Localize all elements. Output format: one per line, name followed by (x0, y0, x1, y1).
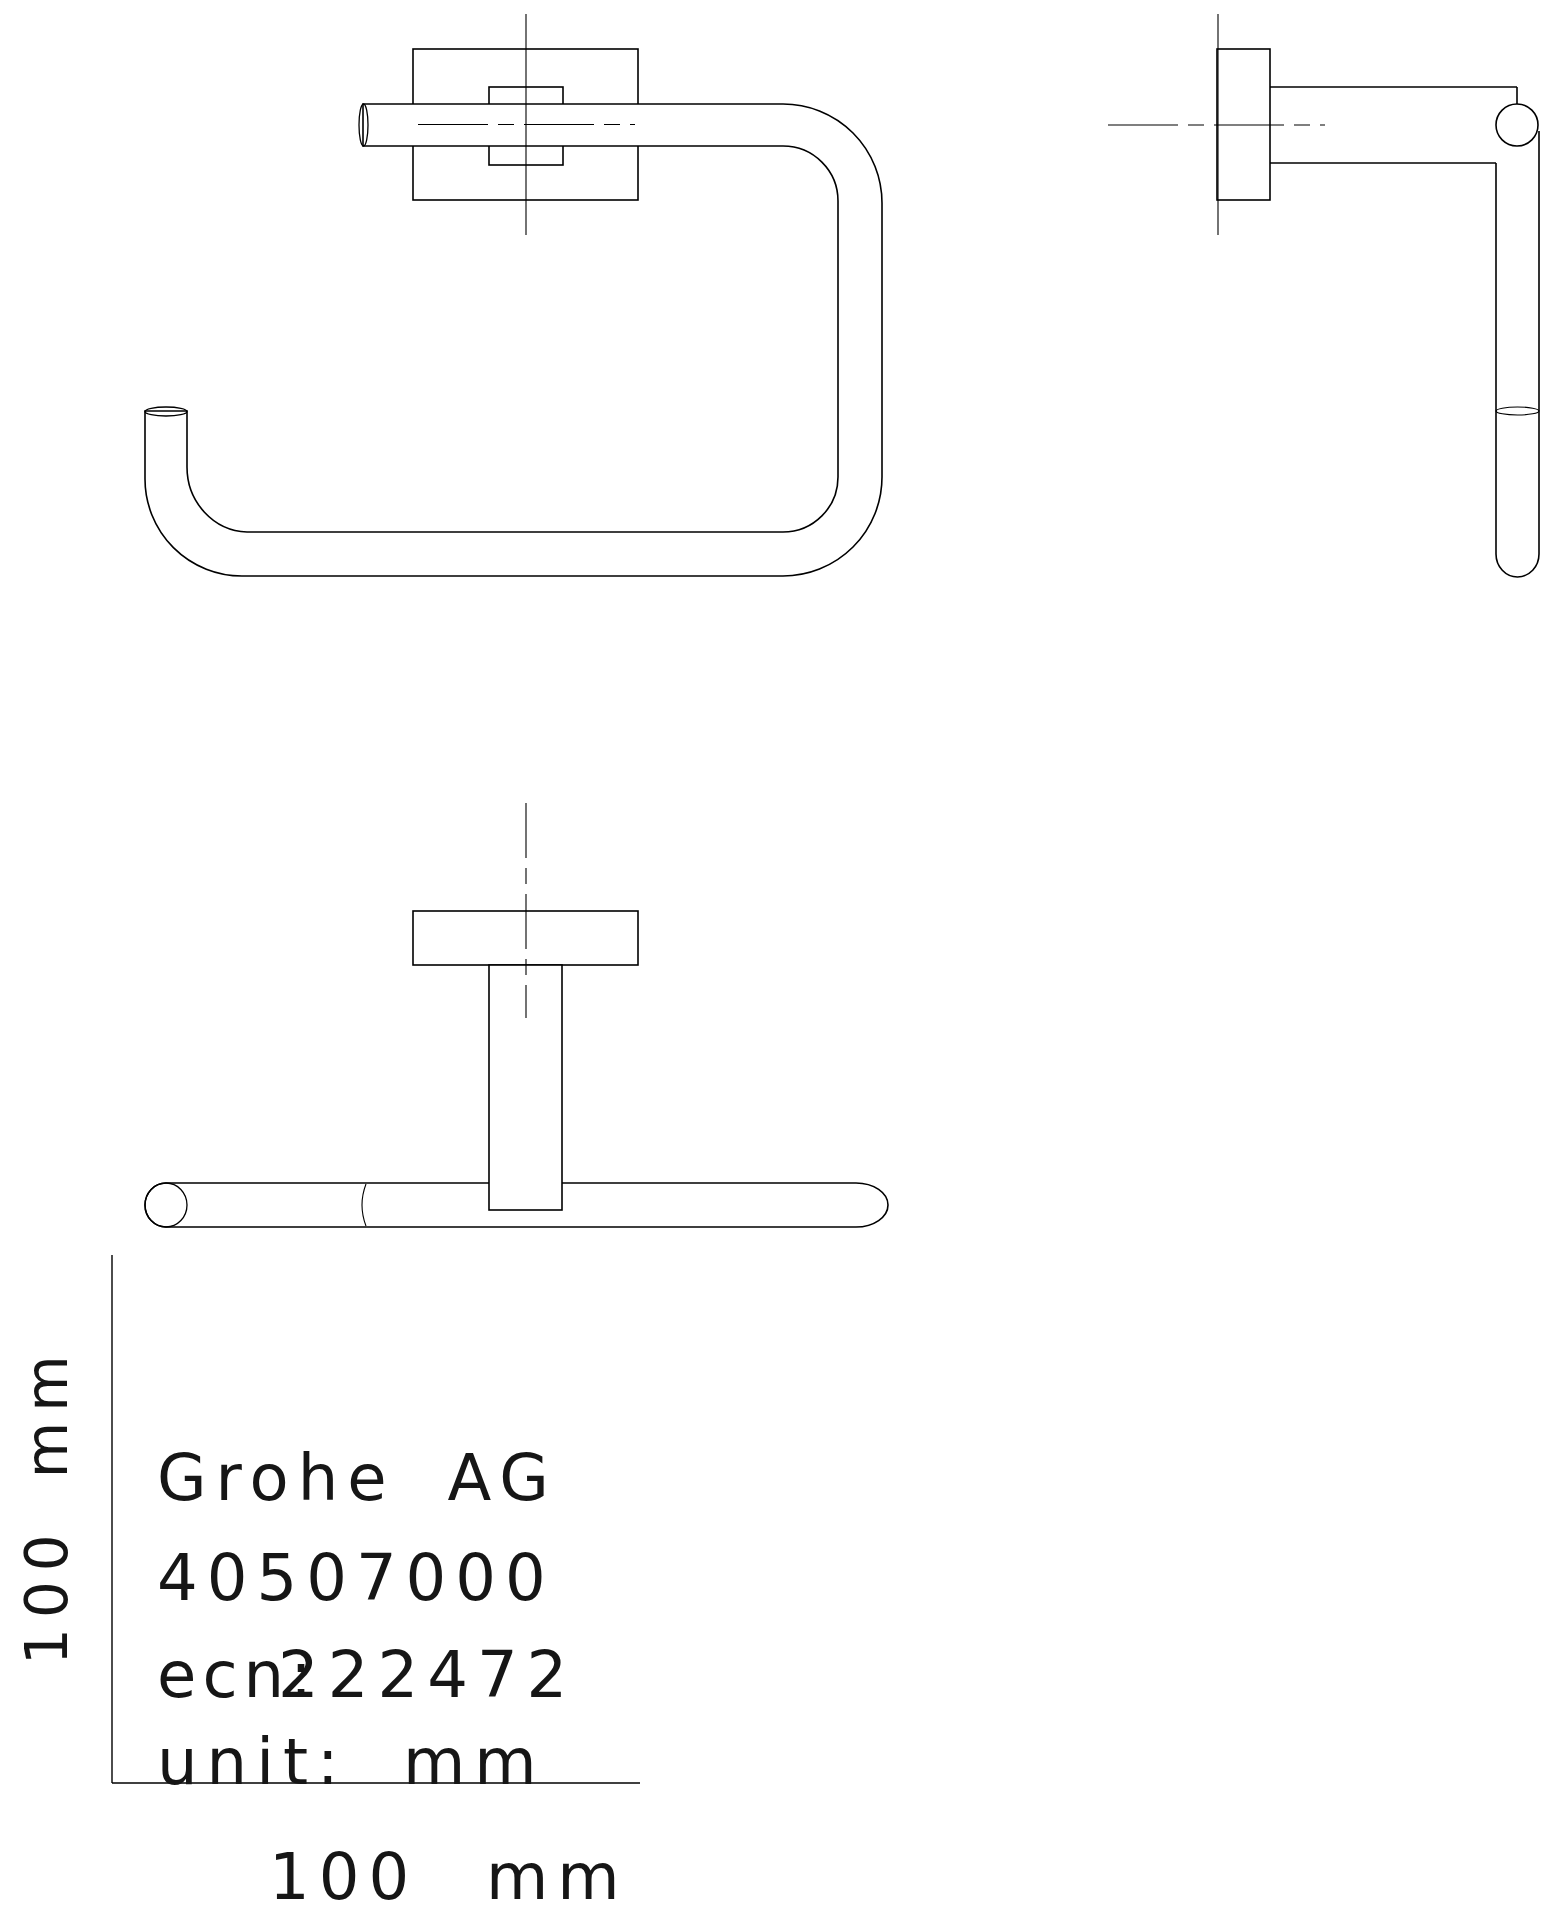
dim-vertical-label: 100mm (18, 1345, 76, 1665)
dim-horizontal-value: 100 (269, 1845, 418, 1909)
unit-value: mm (403, 1730, 546, 1794)
title-company: GroheAG (157, 1446, 558, 1510)
line-art (0, 0, 1554, 1920)
bar-seam-side (1496, 407, 1539, 415)
title-product-number: 40507000 (157, 1546, 555, 1610)
bar-section-circle (1496, 104, 1538, 146)
bottom-view (145, 803, 888, 1227)
company-name: Grohe (157, 1441, 396, 1515)
bar-bottom-cap-side (1496, 554, 1539, 577)
dim-horizontal-unit: mm (486, 1845, 629, 1909)
dim-vertical-value: 100 (13, 1524, 81, 1665)
unit-label: unit: (157, 1730, 348, 1794)
holder-tube-front (145, 104, 882, 576)
dim-vertical-unit: mm (13, 1345, 81, 1478)
ecn-value: 222472 (278, 1643, 576, 1707)
front-view (145, 14, 882, 576)
company-suffix: AG (448, 1441, 558, 1515)
side-view (1108, 14, 1539, 577)
drawing-sheet: GroheAG 40507000 ecn: 222472 unit: mm 10… (0, 0, 1554, 1920)
